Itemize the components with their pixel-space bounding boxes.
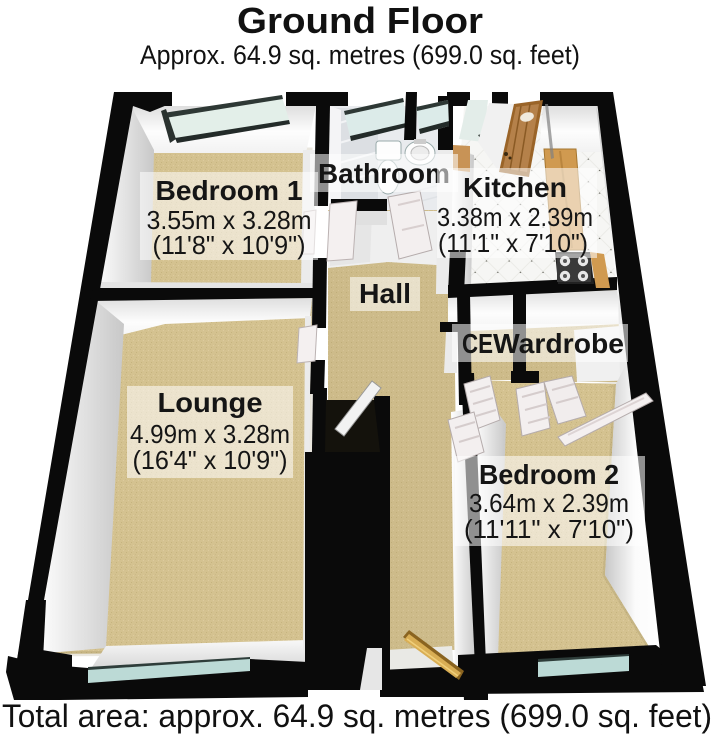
svg-text:Hall: Hall	[359, 278, 411, 309]
svg-text:Lounge: Lounge	[158, 387, 263, 418]
svg-text:Approx. 64.9 sq. metres (699.: Approx. 64.9 sq. metres (699.0 sq. feet)	[140, 40, 580, 70]
svg-text:Wardrobe: Wardrobe	[493, 328, 624, 359]
svg-text:Bathroom: Bathroom	[318, 158, 450, 189]
svg-text:CE: CE	[462, 328, 493, 359]
svg-text:Total area: approx. 64.9 sq.: Total area: approx. 64.9 sq. metres (699…	[2, 698, 712, 734]
svg-text:Ground Floor: Ground Floor	[237, 0, 483, 41]
svg-text:(11'8" x 10'9"): (11'8" x 10'9")	[153, 230, 306, 260]
svg-text:(11'1" x 7'10"): (11'1" x 7'10")	[438, 228, 588, 258]
svg-text:Bedroom 1: Bedroom 1	[156, 175, 303, 206]
svg-text:Bedroom 2: Bedroom 2	[479, 459, 619, 490]
svg-text:Kitchen: Kitchen	[463, 172, 567, 203]
svg-text:(16'4" x 10'9"): (16'4" x 10'9")	[133, 445, 288, 475]
svg-text:(11'11" x 7'10"): (11'11" x 7'10")	[464, 514, 634, 544]
